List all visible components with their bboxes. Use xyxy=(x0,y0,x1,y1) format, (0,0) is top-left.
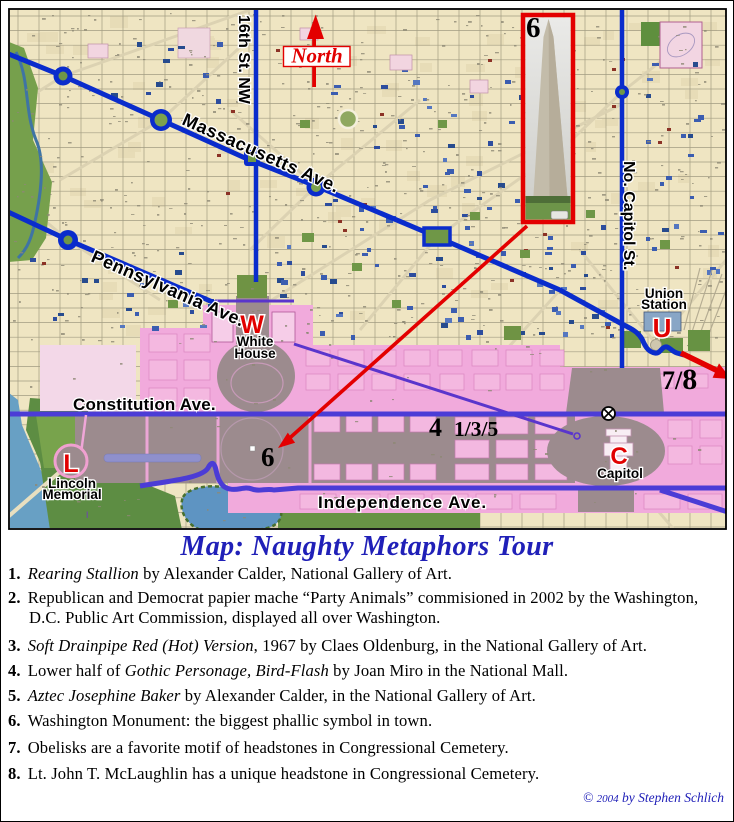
svg-text:Independence Ave.: Independence Ave. xyxy=(318,493,487,512)
svg-text:No. Capitol St.: No. Capitol St. xyxy=(620,161,637,270)
svg-text:6: 6 xyxy=(261,442,275,472)
svg-text:Station: Station xyxy=(641,297,687,312)
svg-text:6: 6 xyxy=(526,12,541,44)
svg-text:Memorial: Memorial xyxy=(42,487,101,502)
svg-text:U: U xyxy=(653,313,672,343)
svg-text:North: North xyxy=(290,44,342,68)
svg-text:4: 4 xyxy=(429,413,442,442)
svg-text:16th St. NW: 16th St. NW xyxy=(235,15,252,105)
svg-text:L: L xyxy=(63,450,78,478)
svg-text:1/3/5: 1/3/5 xyxy=(454,417,498,441)
svg-text:W: W xyxy=(240,311,264,339)
svg-text:Constitution Ave.: Constitution Ave. xyxy=(73,395,216,414)
svg-text:C: C xyxy=(610,443,627,470)
svg-text:House: House xyxy=(234,346,276,361)
svg-text:7/8: 7/8 xyxy=(662,363,697,396)
